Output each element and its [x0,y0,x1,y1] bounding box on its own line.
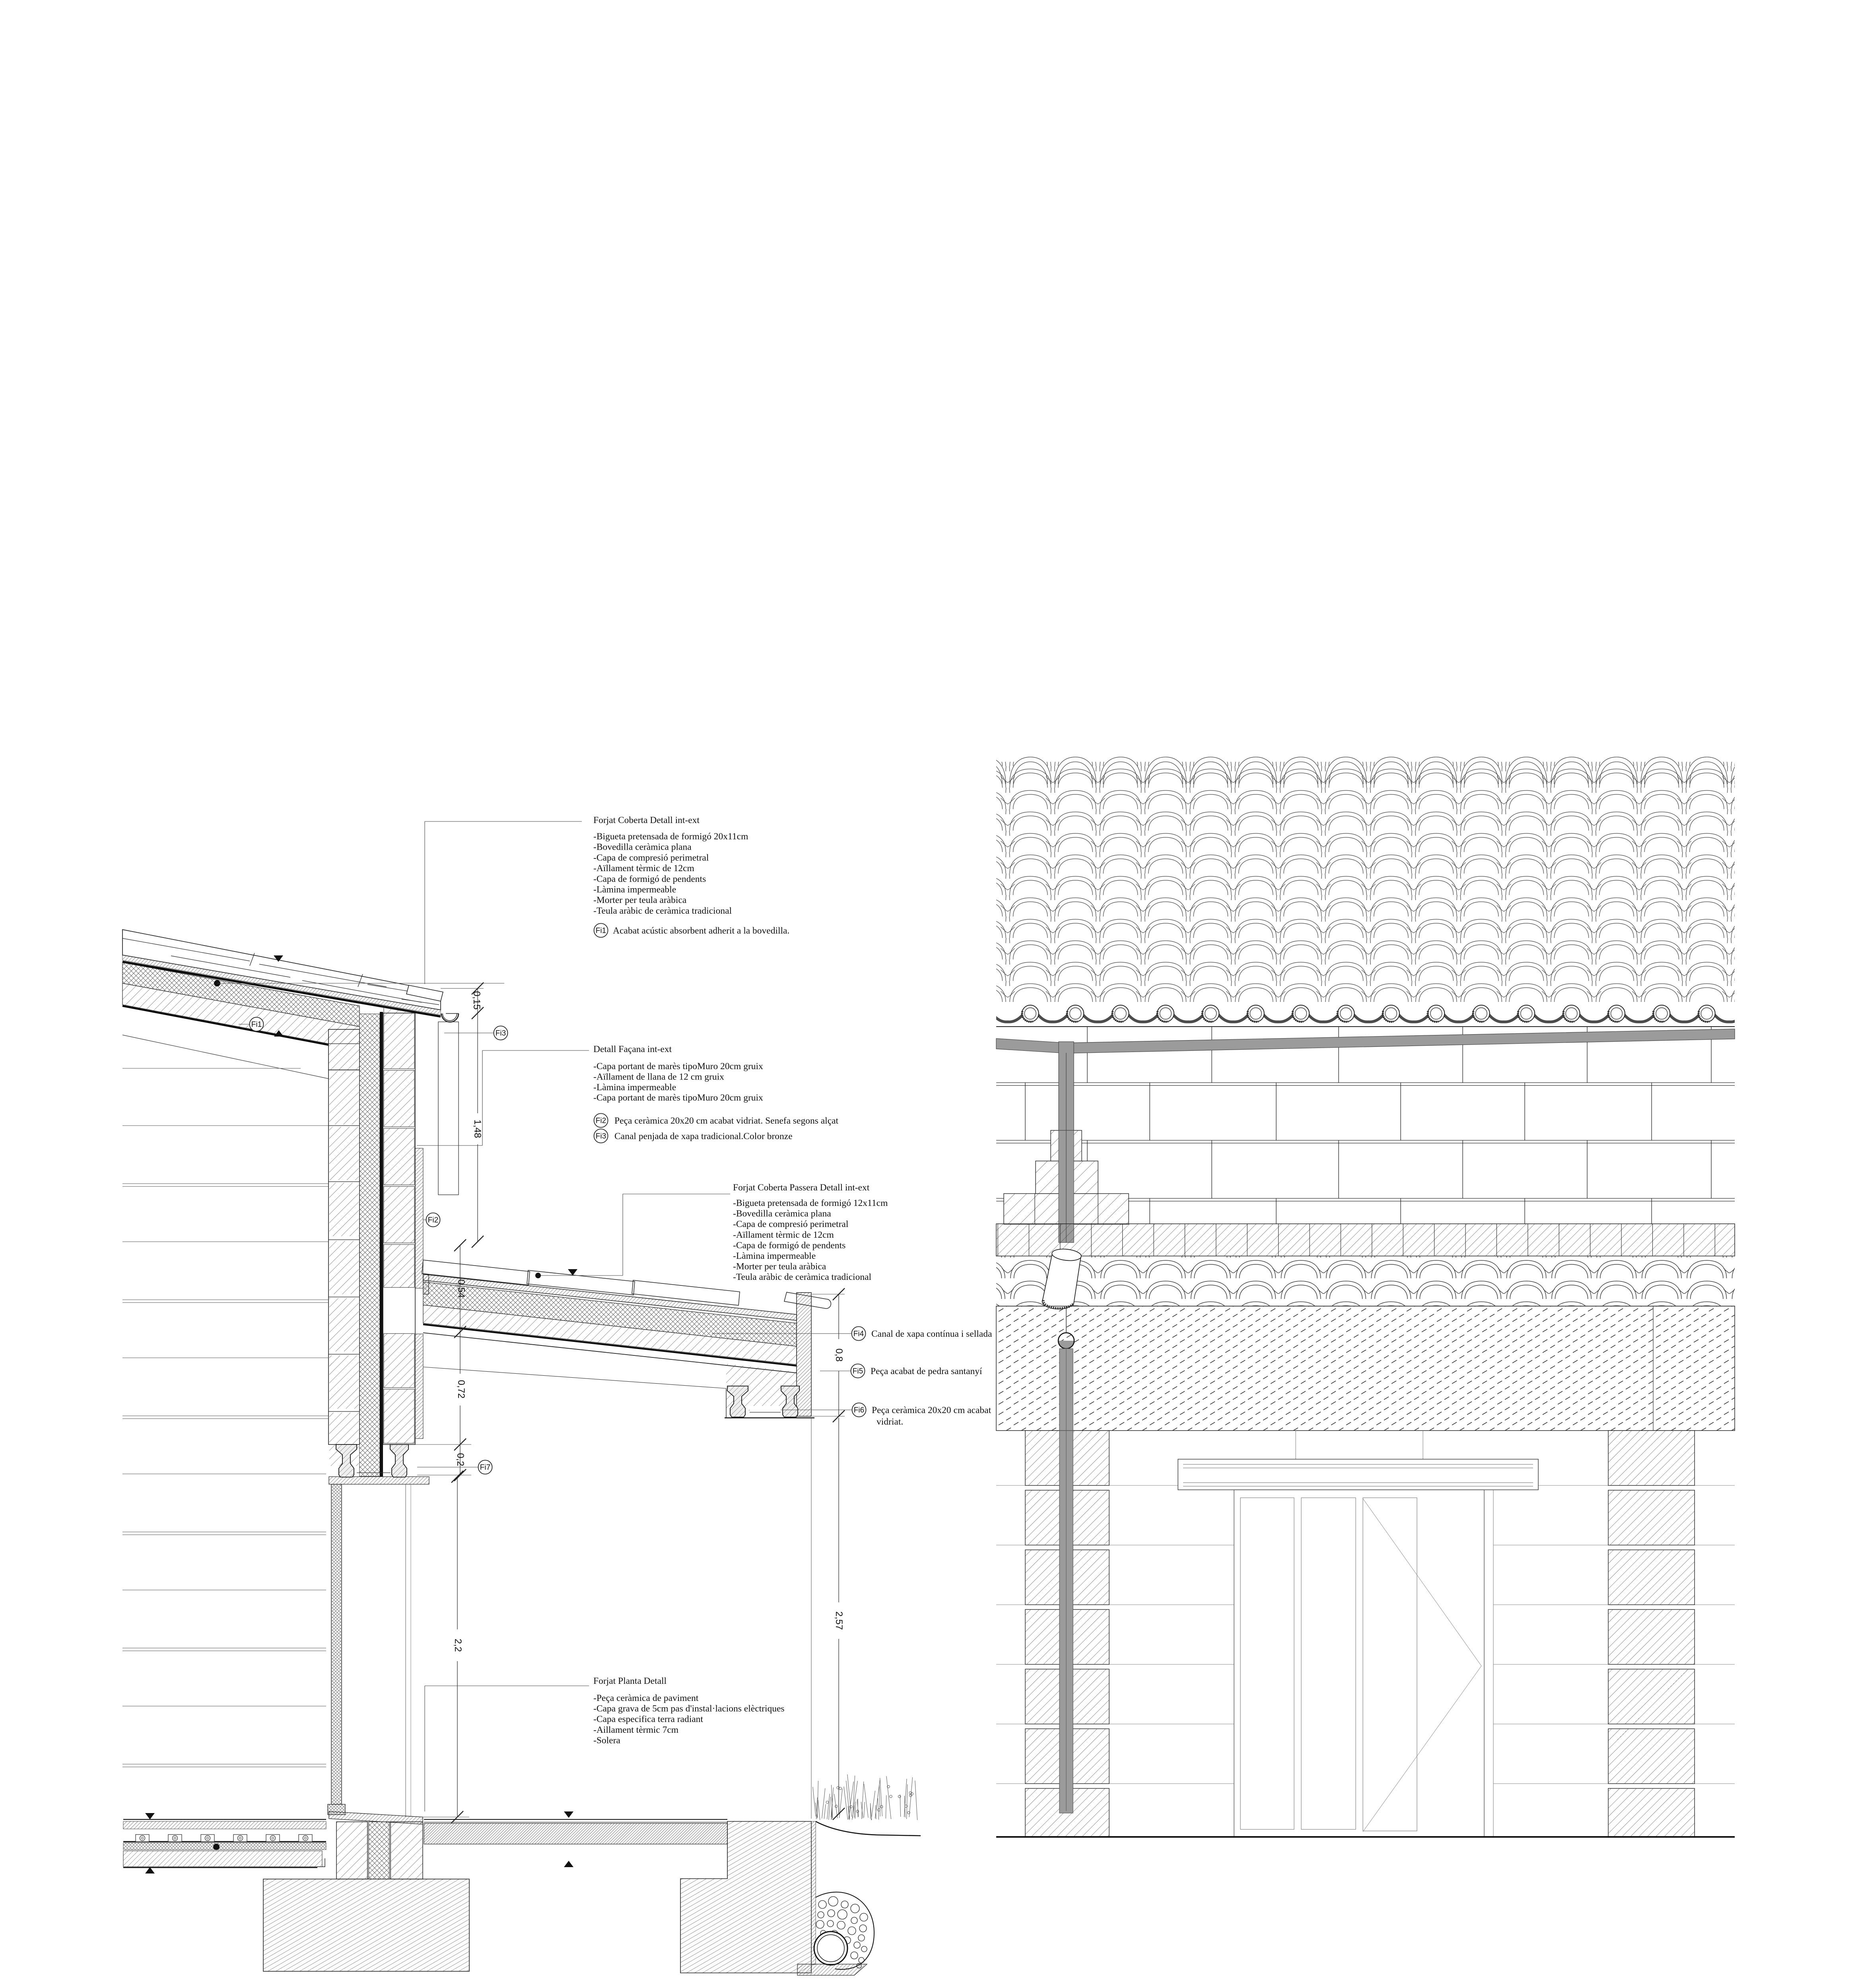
svg-text:-Aïllament tèrmic de 12cm: -Aïllament tèrmic de 12cm [733,1230,834,1240]
svg-text:Fi4: Fi4 [853,1330,864,1338]
svg-text:-Aillament tèrmic 7cm: -Aillament tèrmic 7cm [593,1725,678,1735]
svg-text:Forjat Coberta Detall int-ext: Forjat Coberta Detall int-ext [593,815,700,825]
svg-text:-Bovedilla ceràmica plana: -Bovedilla ceràmica plana [733,1209,831,1219]
svg-text:-Capa de compresió perimetral: -Capa de compresió perimetral [593,852,709,863]
svg-text:-Aïllament tèrmic de 12cm: -Aïllament tèrmic de 12cm [593,863,694,874]
svg-text:-Bigueta pretensada de formigó: -Bigueta pretensada de formigó 20x11cm [593,831,748,842]
svg-text:-Capa de formigó de pendents: -Capa de formigó de pendents [593,874,706,884]
svg-text:Fi1: Fi1 [596,927,606,935]
svg-text:0,2: 0,2 [455,1453,466,1466]
svg-text:0,8: 0,8 [834,1348,844,1361]
svg-text:-Solera: -Solera [593,1735,620,1745]
svg-text:-Capa de formigó de pendents: -Capa de formigó de pendents [733,1240,845,1250]
svg-text:-Capa de compresió perimetral: -Capa de compresió perimetral [733,1219,849,1229]
svg-text:Fi3: Fi3 [496,1029,506,1038]
svg-text:-Aïllament de llana de 12 cm g: -Aïllament de llana de 12 cm gruix [593,1072,724,1082]
svg-text:0,72: 0,72 [456,1380,466,1399]
svg-text:1,48: 1,48 [472,1120,483,1138]
svg-text:Peça ceràmica 20x20 cm acabat: Peça ceràmica 20x20 cm acabat vidriat. S… [614,1116,839,1126]
svg-text:0,15: 0,15 [471,991,482,1010]
svg-text:-Bovedilla ceràmica plana: -Bovedilla ceràmica plana [593,842,692,852]
svg-text:-Morter per teula aràbica: -Morter per teula aràbica [593,895,687,905]
svg-text:2,57: 2,57 [834,1611,844,1630]
svg-text:Fi6: Fi6 [854,1406,864,1415]
svg-text:Fi2: Fi2 [596,1117,606,1125]
svg-text:-Làmina impermeable: -Làmina impermeable [733,1251,816,1261]
svg-text:-Teula aràbic de ceràmica trad: -Teula aràbic de ceràmica tradicional [593,906,732,916]
svg-text:Fi2: Fi2 [428,1216,438,1225]
svg-text:Fi1: Fi1 [251,1021,262,1029]
svg-text:Peça acabat de pedra santanyí: Peça acabat de pedra santanyí [871,1366,982,1376]
svg-text:-Teula aràbic de ceràmica trad: -Teula aràbic de ceràmica tradicional [733,1272,871,1282]
svg-text:0,54: 0,54 [456,1279,466,1298]
svg-text:Peça ceràmica 20x20 cm acabat: Peça ceràmica 20x20 cm acabat [872,1405,991,1415]
svg-text:Forjat Coberta Passera Detall: Forjat Coberta Passera Detall int-ext [733,1182,870,1193]
svg-text:Canal de xapa contínua i sella: Canal de xapa contínua i sellada [871,1329,992,1339]
svg-text:Fi5: Fi5 [853,1367,863,1376]
svg-text:Forjat Planta Detall: Forjat Planta Detall [593,1676,667,1686]
svg-text:Detall Façana int-ext: Detall Façana int-ext [593,1044,672,1054]
svg-text:-Morter per teula aràbica: -Morter per teula aràbica [733,1262,826,1272]
svg-text:-Capa grava de 5cm pas d'insta: -Capa grava de 5cm pas d'instal·lacions … [593,1704,785,1714]
svg-text:-Làmina impermeable: -Làmina impermeable [593,885,676,895]
svg-text:Acabat acústic absorbent adher: Acabat acústic absorbent adherit a la bo… [613,926,789,936]
svg-text:Fi7: Fi7 [480,1464,490,1472]
svg-text:-Capa portant de marès tipoMur: -Capa portant de marès tipoMuro 20cm gru… [593,1093,763,1103]
svg-text:vidriat.: vidriat. [877,1417,903,1427]
svg-text:-Peça ceràmica de paviment: -Peça ceràmica de paviment [593,1693,699,1703]
svg-text:Fi3: Fi3 [596,1132,606,1141]
svg-text:-Bigueta pretensada de formigó: -Bigueta pretensada de formigó 12x11cm [733,1198,888,1208]
svg-text:-Làmina impermeable: -Làmina impermeable [593,1082,676,1093]
svg-text:2,2: 2,2 [453,1639,463,1652]
svg-text:-Capa portant de marès tipoMur: -Capa portant de marès tipoMuro 20cm gru… [593,1061,763,1072]
svg-text:-Capa especifica terra radiant: -Capa especifica terra radiant [593,1714,703,1724]
svg-text:Canal penjada de xapa tradicio: Canal penjada de xapa tradicional.Color … [614,1131,793,1142]
